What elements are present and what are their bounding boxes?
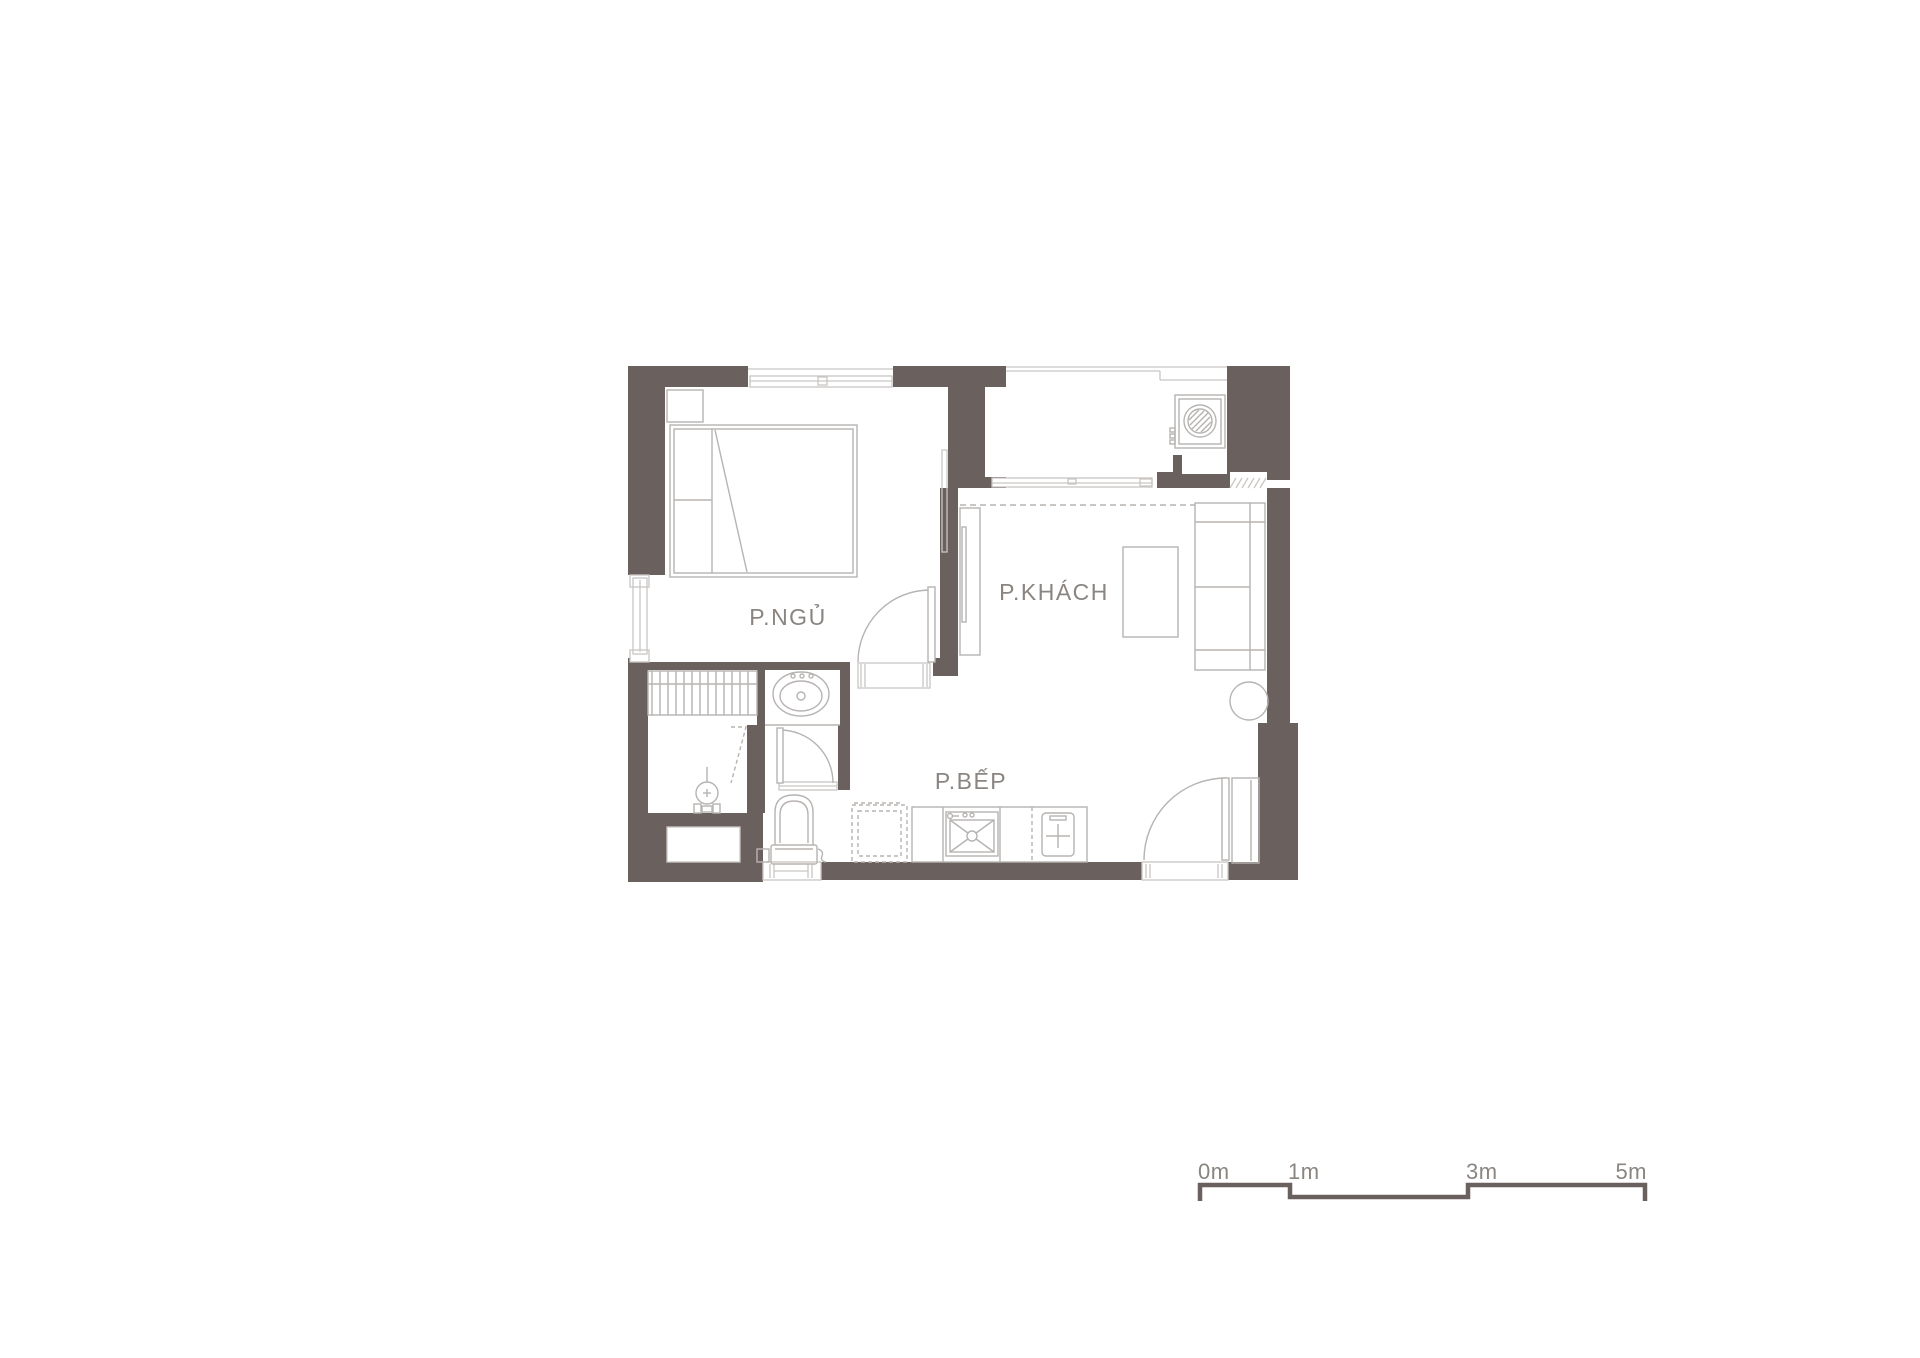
floor-plan-canvas: P.NGỦ P.KHÁCH P.BẾP 0m 1m 3m 5m (0, 0, 1920, 1358)
shower-mixer (694, 767, 720, 813)
kitchen-counter (912, 807, 1087, 862)
scale-tick-3m: 3m (1466, 1159, 1498, 1184)
tv (962, 527, 966, 622)
bedroom-door (858, 587, 935, 688)
bedroom-window (748, 369, 893, 387)
shower-partition (731, 727, 746, 783)
wall-top-right (893, 366, 1006, 387)
coffee-table (1123, 547, 1178, 637)
side-window (630, 575, 649, 662)
corner-hatch (1230, 472, 1267, 488)
service-niche (667, 827, 740, 862)
balcony (1170, 395, 1225, 448)
refrigerator (1232, 778, 1259, 863)
kitchen-sink (946, 812, 998, 856)
wall-niche-jamb (1173, 455, 1182, 477)
kitchen-fixtures (852, 778, 1259, 863)
living-furniture (960, 503, 1268, 720)
wardrobe (648, 671, 757, 715)
scale-bar-line (1200, 1185, 1645, 1201)
cooktop (1042, 813, 1074, 856)
wall-bedroom-living (940, 488, 958, 658)
nightstand (667, 390, 703, 422)
wall-shower-divider (747, 725, 765, 813)
entry-door (1142, 778, 1229, 880)
paper-holder (818, 849, 826, 862)
page: { "plan": { "rooms": { "bedroom": { "lab… (0, 0, 1920, 1358)
wall-sink-right (840, 662, 850, 725)
sofa (1195, 503, 1265, 670)
wall-bottom (820, 862, 1142, 880)
balcony-sliding-door (992, 478, 1152, 487)
room-label-kitchen: P.BẾP (935, 767, 1007, 794)
wall-right-column (1258, 723, 1298, 880)
room-label-living: P.KHÁCH (999, 579, 1109, 605)
washing-machine (1170, 395, 1225, 448)
wall-right (1267, 488, 1290, 723)
wall-living-top (1157, 472, 1230, 488)
bedroom-door-leaf (928, 587, 935, 662)
bathroom-door (777, 728, 837, 790)
room-label-bedroom: P.NGỦ (749, 602, 826, 630)
vanity-sink (765, 672, 840, 725)
blanket-fold (715, 430, 747, 572)
wall-sink-top (765, 662, 840, 668)
scale-tick-5m: 5m (1615, 1159, 1647, 1184)
side-table (1230, 682, 1268, 720)
wall-left-upper (628, 366, 665, 575)
bathroom-door-leaf (777, 728, 783, 783)
wall-door-jamb (933, 658, 958, 676)
entry-door-leaf (1222, 778, 1229, 860)
wall-bedroom-shaft (948, 387, 985, 477)
dashed-appliance (852, 803, 907, 862)
wall-toilet-right (838, 725, 850, 790)
tv-console (960, 508, 980, 655)
toilet (757, 795, 826, 864)
balcony-niche (1182, 455, 1227, 474)
balcony-railing (1006, 367, 1227, 380)
scale-tick-1m: 1m (1288, 1159, 1320, 1184)
scale-bar: 0m 1m 3m 5m (1198, 1159, 1647, 1201)
bed (670, 425, 857, 577)
scale-tick-0m: 0m (1198, 1159, 1230, 1184)
wall-wardrobe-divider (757, 662, 765, 725)
wall-balcony-right (1227, 366, 1290, 480)
faucet-icon (948, 814, 953, 819)
